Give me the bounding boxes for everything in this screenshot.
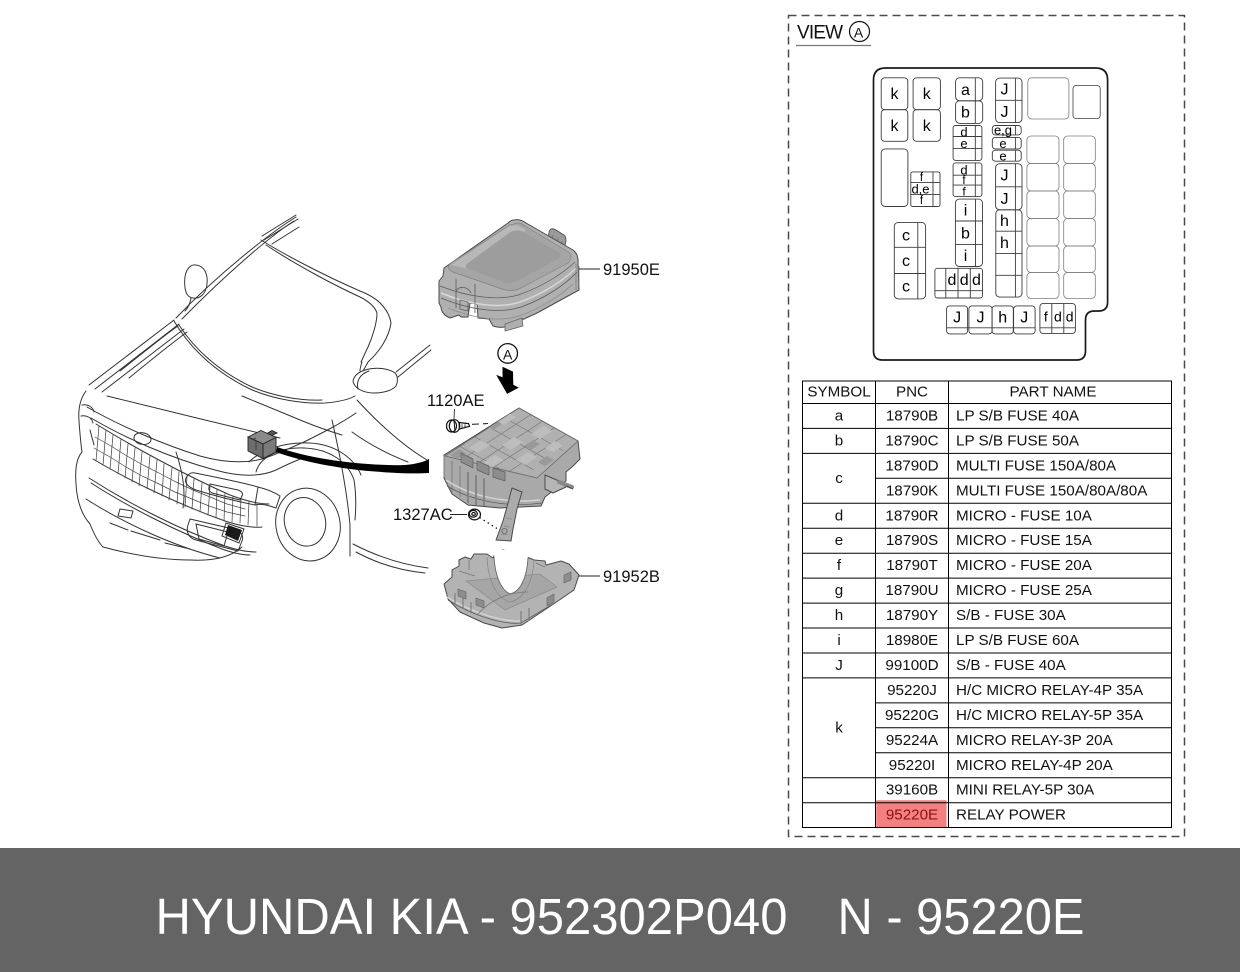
svg-text:J: J — [1001, 82, 1009, 99]
svg-text:HYUNDAI KIA - 952302P040: HYUNDAI KIA - 952302P040 — [156, 888, 788, 945]
svg-text:18790Y: 18790Y — [886, 607, 938, 624]
svg-text:c: c — [835, 470, 843, 487]
svg-text:MICRO - FUSE 15A: MICRO - FUSE 15A — [956, 532, 1093, 549]
svg-text:95220I: 95220I — [889, 757, 935, 774]
svg-text:MICRO - FUSE 20A: MICRO - FUSE 20A — [956, 557, 1093, 574]
svg-text:f: f — [920, 195, 924, 207]
svg-text:e: e — [999, 148, 1006, 163]
svg-text:J: J — [1001, 191, 1009, 208]
svg-text:RELAY POWER: RELAY POWER — [956, 807, 1066, 824]
svg-text:e: e — [960, 136, 967, 151]
svg-text:f: f — [1044, 309, 1048, 325]
svg-text:95220J: 95220J — [887, 682, 937, 699]
svg-text:A: A — [854, 25, 864, 41]
svg-text:a: a — [961, 82, 970, 99]
svg-text:18790U: 18790U — [885, 582, 938, 599]
svg-text:MICRO - FUSE 10A: MICRO - FUSE 10A — [956, 507, 1093, 524]
svg-text:LP S/B FUSE 60A: LP S/B FUSE 60A — [956, 632, 1080, 649]
svg-text:a: a — [835, 408, 844, 425]
svg-text:k: k — [923, 86, 932, 103]
svg-text:d: d — [960, 272, 969, 289]
svg-text:18790D: 18790D — [885, 457, 938, 474]
svg-text:J: J — [953, 309, 961, 326]
svg-text:MICRO RELAY-4P 20A: MICRO RELAY-4P 20A — [956, 757, 1114, 774]
svg-text:k: k — [891, 86, 900, 103]
svg-text:18790K: 18790K — [886, 482, 938, 499]
svg-text:c: c — [902, 279, 910, 296]
svg-text:d: d — [972, 272, 981, 289]
svg-text:LP S/B FUSE 40A: LP S/B FUSE 40A — [956, 408, 1080, 425]
svg-text:A: A — [503, 346, 513, 362]
svg-text:g: g — [835, 582, 843, 599]
svg-text:d: d — [835, 507, 843, 524]
svg-text:d: d — [947, 272, 956, 289]
svg-text:c: c — [902, 253, 910, 270]
svg-text:J: J — [1001, 104, 1009, 121]
svg-text:N - 95220E: N - 95220E — [838, 888, 1085, 945]
svg-text:h: h — [1000, 213, 1009, 230]
svg-text:99100D: 99100D — [885, 657, 938, 674]
svg-text:18790R: 18790R — [885, 507, 938, 524]
svg-text:d: d — [1054, 309, 1062, 325]
svg-text:18790B: 18790B — [886, 408, 938, 425]
svg-text:h: h — [835, 607, 843, 624]
svg-text:MICRO - FUSE 25A: MICRO - FUSE 25A — [956, 582, 1093, 599]
svg-text:b: b — [961, 105, 970, 122]
svg-text:S/B - FUSE 30A: S/B - FUSE 30A — [956, 607, 1067, 624]
svg-text:MICRO RELAY-3P 20A: MICRO RELAY-3P 20A — [956, 732, 1114, 749]
svg-text:i: i — [964, 203, 968, 220]
svg-text:95220E: 95220E — [886, 807, 938, 824]
svg-text:J: J — [1001, 168, 1009, 185]
svg-text:1120AE: 1120AE — [427, 392, 485, 410]
svg-text:VIEW: VIEW — [797, 23, 843, 44]
svg-text:SYMBOL: SYMBOL — [807, 384, 870, 401]
svg-text:S/B - FUSE 40A: S/B - FUSE 40A — [956, 657, 1067, 674]
svg-text:b: b — [835, 432, 843, 449]
svg-text:18790C: 18790C — [885, 432, 938, 449]
svg-text:H/C MICRO RELAY-4P 35A: H/C MICRO RELAY-4P 35A — [956, 682, 1144, 699]
svg-text:f: f — [837, 557, 842, 574]
svg-text:k: k — [923, 118, 932, 135]
svg-text:i: i — [964, 248, 968, 265]
svg-text:J: J — [1020, 309, 1028, 326]
svg-text:h: h — [1000, 235, 1009, 252]
svg-text:95220G: 95220G — [885, 707, 939, 724]
svg-text:k: k — [891, 118, 900, 135]
svg-text:18980E: 18980E — [886, 632, 938, 649]
svg-text:b: b — [961, 225, 970, 242]
svg-text:91950E: 91950E — [603, 261, 660, 279]
svg-text:MULTI FUSE 150A/80A/80A: MULTI FUSE 150A/80A/80A — [956, 482, 1148, 499]
svg-text:J: J — [835, 657, 843, 674]
svg-text:MULTI FUSE 150A/80A: MULTI FUSE 150A/80A — [956, 457, 1117, 474]
svg-text:i: i — [837, 632, 840, 649]
svg-text:e: e — [835, 532, 843, 549]
svg-text:PNC: PNC — [896, 384, 928, 401]
svg-text:h: h — [998, 309, 1007, 326]
svg-text:d: d — [1066, 309, 1074, 325]
svg-text:18790T: 18790T — [886, 557, 938, 574]
svg-text:k: k — [835, 719, 843, 736]
svg-text:1327AC: 1327AC — [393, 506, 453, 524]
svg-text:c: c — [902, 227, 910, 244]
svg-text:LP S/B FUSE 50A: LP S/B FUSE 50A — [956, 432, 1080, 449]
svg-text:95224A: 95224A — [886, 732, 939, 749]
svg-text:H/C MICRO RELAY-5P 35A: H/C MICRO RELAY-5P 35A — [956, 707, 1144, 724]
svg-text:18790S: 18790S — [886, 532, 938, 549]
svg-text:PART NAME: PART NAME — [1010, 384, 1097, 401]
svg-text:MINI RELAY-5P 30A: MINI RELAY-5P 30A — [956, 782, 1095, 799]
svg-text:39160B: 39160B — [886, 782, 938, 799]
svg-text:91952B: 91952B — [603, 568, 660, 586]
svg-text:J: J — [977, 309, 985, 326]
